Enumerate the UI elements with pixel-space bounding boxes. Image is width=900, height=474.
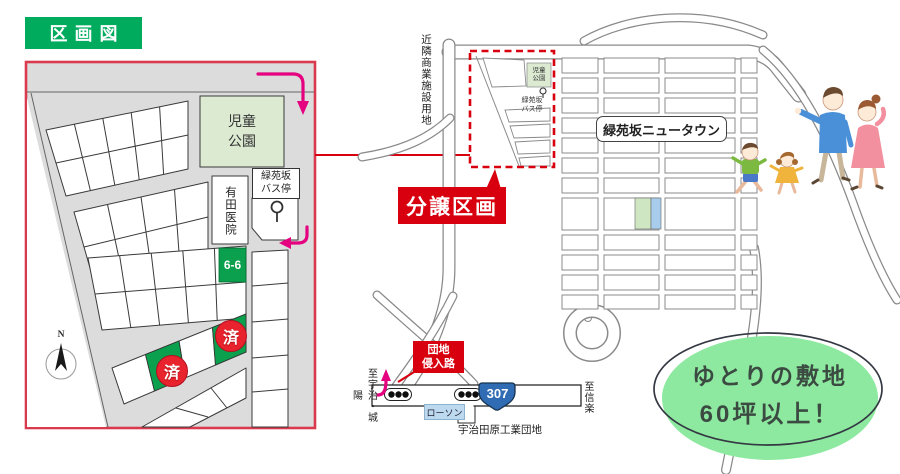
city-block	[562, 118, 598, 133]
city-block	[741, 198, 757, 230]
city-block	[604, 158, 659, 173]
inset-bus-stop-label: 緑苑坂 バス停	[509, 95, 555, 115]
city-block	[665, 178, 735, 193]
city-block	[562, 98, 598, 113]
lawson-label: ローソン	[424, 404, 465, 420]
sold-label-2: 済	[157, 356, 187, 386]
city-block	[665, 158, 735, 173]
city-block	[604, 58, 659, 73]
city-block	[665, 295, 735, 309]
promo-line2: 60坪以上！	[658, 395, 882, 427]
traffic-light-icon	[385, 389, 412, 401]
grid-park-green	[635, 198, 651, 229]
bus-stop-label: 緑苑坂 バス停	[252, 168, 300, 199]
page-title-badge: 区画図	[25, 17, 142, 49]
sale-label-pointer	[486, 169, 501, 189]
city-block	[741, 275, 757, 290]
lot-number-label: 6-6	[219, 248, 246, 282]
mother-figure	[851, 95, 885, 190]
city-block	[741, 118, 757, 133]
city-block	[665, 235, 735, 250]
city-block	[741, 58, 757, 73]
girl-figure	[771, 152, 802, 193]
city-block	[604, 98, 659, 113]
city-block	[562, 138, 598, 153]
city-block	[665, 198, 735, 230]
city-block	[562, 178, 598, 193]
city-block	[741, 78, 757, 93]
to-shigaraki-label: 至信楽	[580, 376, 595, 418]
city-block	[604, 295, 659, 309]
route-number-label: 307	[481, 385, 514, 402]
lot-column-right	[252, 250, 288, 427]
city-block	[741, 255, 757, 270]
city-block	[562, 235, 598, 250]
city-block	[665, 98, 735, 113]
city-block	[562, 255, 598, 270]
city-block	[741, 235, 757, 250]
city-block	[741, 295, 757, 309]
city-block	[665, 58, 735, 73]
city-block	[562, 295, 598, 309]
city-block	[604, 178, 659, 193]
traffic-light-icon-2	[455, 389, 482, 401]
commercial-land-label: 近隣商業施設用地	[418, 30, 435, 130]
city-block	[604, 255, 659, 270]
newtown-label: 緑苑坂ニュータウン	[596, 116, 727, 142]
city-block	[562, 58, 598, 73]
promo-line1: ゆとりの敷地	[658, 359, 882, 389]
inset-park-label: 児童 公園	[527, 63, 551, 87]
industrial-park-label: 宇治田原工業団地	[448, 422, 552, 436]
sale-section-label: 分譲区画	[398, 187, 506, 224]
entrance-road-label: 団地 侵入路	[413, 341, 464, 373]
park-label: 児童 公園	[200, 96, 284, 167]
sold-label-1: 済	[216, 321, 246, 351]
to-uji-label: 至宇治・城陽	[356, 365, 371, 425]
city-block	[562, 198, 598, 230]
city-block	[665, 275, 735, 290]
city-block	[604, 275, 659, 290]
city-block	[604, 235, 659, 250]
city-block	[562, 275, 598, 290]
city-block	[604, 78, 659, 93]
compass-n-label: N	[53, 329, 69, 341]
grid-facility-blue	[651, 198, 661, 229]
city-block	[562, 158, 598, 173]
road-branch-west	[362, 118, 450, 157]
city-block	[562, 78, 598, 93]
flyer-map-page: 区画図 児童 公園 緑苑坂 バス停 有田医院 6-6 済 済 N 近隣商業施設用…	[0, 0, 900, 474]
city-block	[665, 78, 735, 93]
city-block	[665, 255, 735, 270]
city-block	[741, 98, 757, 113]
clinic-label: 有田医院	[215, 180, 245, 242]
newtown-grid	[562, 58, 757, 309]
